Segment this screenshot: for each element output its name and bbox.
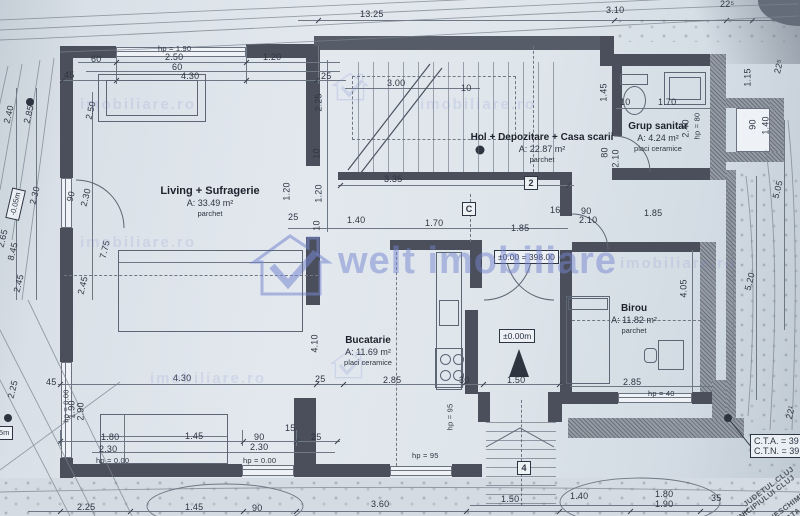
dimension-label: 3.60: [371, 500, 389, 509]
dimension-label: 1.85: [511, 224, 529, 233]
room-area: A: 11.69 m²: [322, 347, 414, 358]
ctn-value: C.T.N. = 39: [754, 446, 800, 456]
dimension-label: 3.35: [384, 175, 402, 184]
dimension-label: 10: [461, 84, 471, 93]
dimension-label: 25: [288, 213, 298, 222]
burner-icon: [440, 354, 451, 365]
desk-chair: [644, 348, 657, 363]
dimension-label: hp = 80: [693, 113, 701, 140]
dimension-label: 90: [254, 433, 264, 442]
burner-icon: [440, 370, 451, 381]
desk: [658, 340, 684, 370]
room-label-kitchen: Bucatarie A: 11.69 m² placi ceramice: [322, 334, 414, 368]
dimension-label: 2.10: [612, 149, 621, 167]
dimension-label: hp = 95: [412, 452, 439, 460]
cta-leader-line: [728, 418, 752, 448]
dimension-label: 15: [285, 424, 295, 433]
dimension-label: 2.30: [250, 443, 268, 452]
room-name: Living + Sufragerie: [130, 185, 290, 198]
room-area: A: 33.49 m²: [130, 198, 290, 209]
dimension-label: hp = 40: [648, 390, 675, 398]
dimension-label: 1.70: [658, 98, 676, 107]
dimension-label: 10: [313, 220, 322, 230]
dimension-label: 2.25: [77, 503, 95, 512]
dining-table-inner: [106, 80, 198, 116]
room-name: Hol + Depozitare + Casa scarii: [462, 131, 622, 144]
dimension-label: 90: [252, 504, 262, 513]
dimension-label: 13.25: [360, 10, 384, 19]
room-name: Bucatarie: [322, 334, 414, 347]
room-label-hol: Hol + Depozitare + Casa scarii A: 22.87 …: [462, 131, 622, 165]
room-floor: placi ceramice: [612, 144, 704, 154]
room-area: A: 11.82 m²: [588, 315, 680, 326]
dimension-label: 1.45: [185, 503, 203, 512]
floor-plan-sheet: Living + Sufragerie A: 33.49 m² parchet …: [0, 0, 800, 516]
dimension-label: 30: [459, 376, 469, 385]
grid-marker: C: [462, 202, 476, 216]
dimension-label: 1.45: [185, 432, 203, 441]
dimension-label: 2.85: [623, 378, 641, 387]
dimension-label: 2.85: [383, 376, 401, 385]
dimension-label: 10: [620, 98, 630, 107]
dimension-label: 45: [64, 71, 74, 80]
dimension-label: hp = 95: [446, 404, 454, 431]
dimension-label: 1.50: [507, 376, 525, 385]
room-label-living: Living + Sufragerie A: 33.49 m² parchet: [130, 185, 290, 219]
dimension-label: 25: [321, 72, 331, 81]
dimension-label: hp = 0.00: [96, 457, 129, 465]
dimension-label: 2.25: [315, 93, 324, 111]
level-marker: ±0.00m: [499, 329, 535, 343]
room-floor: placi ceramice: [322, 358, 414, 368]
room-floor: parchet: [462, 155, 622, 165]
dimension-label: 80: [601, 147, 610, 157]
dimension-label: 1.50: [501, 495, 519, 504]
dimension-label: 1.70: [425, 219, 443, 228]
dimension-label: 10.25: [366, 0, 390, 2]
dimension-label: 25: [311, 433, 321, 442]
level-marker: -0.25m: [0, 426, 13, 440]
dimension-label: 35: [711, 494, 721, 503]
dimension-label: 16: [550, 206, 560, 215]
dimension-label: 1.20: [283, 182, 292, 200]
room-name: Birou: [588, 302, 680, 315]
cta-ctn-box: C.T.A. = 39 C.T.N. = 39: [750, 434, 800, 458]
burner-icon: [453, 354, 464, 365]
dimension-label: 1.40: [347, 216, 365, 225]
grid-marker: 2: [524, 176, 538, 190]
dimension-label: 1.20: [315, 184, 324, 202]
entrance-arrow-icon: [509, 349, 529, 377]
dimension-label: 1.20: [263, 53, 281, 62]
dimension-label: 22⁵: [720, 0, 734, 9]
dimension-label: 1.80: [655, 490, 673, 499]
toilet-tank: [620, 74, 648, 85]
dimension-label: 2.40: [682, 119, 691, 137]
dimension-label: 3.00: [387, 79, 405, 88]
dimension-label: 3.10: [606, 6, 624, 15]
kitchen-sink: [439, 300, 459, 326]
grid-marker: 4: [517, 461, 531, 475]
dimension-label: 4.30: [173, 374, 191, 383]
dimension-label: 1.45: [600, 83, 609, 101]
dimension-label: 1.40: [762, 116, 771, 134]
room-label-office: Birou A: 11.82 m² parchet: [588, 302, 680, 336]
dimension-label: 10: [313, 148, 322, 158]
room-area: A: 22.87 m²: [462, 144, 622, 155]
dimension-label: 2.50: [165, 53, 183, 62]
dimension-label: 1.80: [101, 433, 119, 442]
room-floor: parchet: [130, 209, 290, 219]
dimension-label: 4.05: [680, 279, 689, 297]
dimension-label: 2.30: [99, 445, 117, 454]
dimension-label: 2.90: [77, 402, 86, 420]
dimension-label: 1.90: [655, 500, 673, 509]
level-marker: ±0.00 = 398.00: [494, 250, 559, 264]
dimension-label: 60: [91, 55, 101, 64]
dimension-label: 45: [46, 378, 56, 387]
dimension-label: 1.40: [570, 492, 588, 501]
dimension-label: 1.85: [644, 209, 662, 218]
dimension-label: 25: [315, 375, 325, 384]
dimension-label: 4.30: [181, 72, 199, 81]
sofa-group: [118, 250, 303, 332]
dimension-label: 90: [749, 119, 758, 129]
dimension-label: 4.10: [311, 334, 320, 352]
dimension-label: hp = 0.00: [243, 457, 276, 465]
cta-value: C.T.A. = 39: [754, 436, 800, 446]
bush-outlines: [147, 478, 720, 516]
dimension-label: 2.10: [579, 216, 597, 225]
room-floor: parchet: [588, 326, 680, 336]
dimension-label: 1.15: [744, 68, 753, 86]
